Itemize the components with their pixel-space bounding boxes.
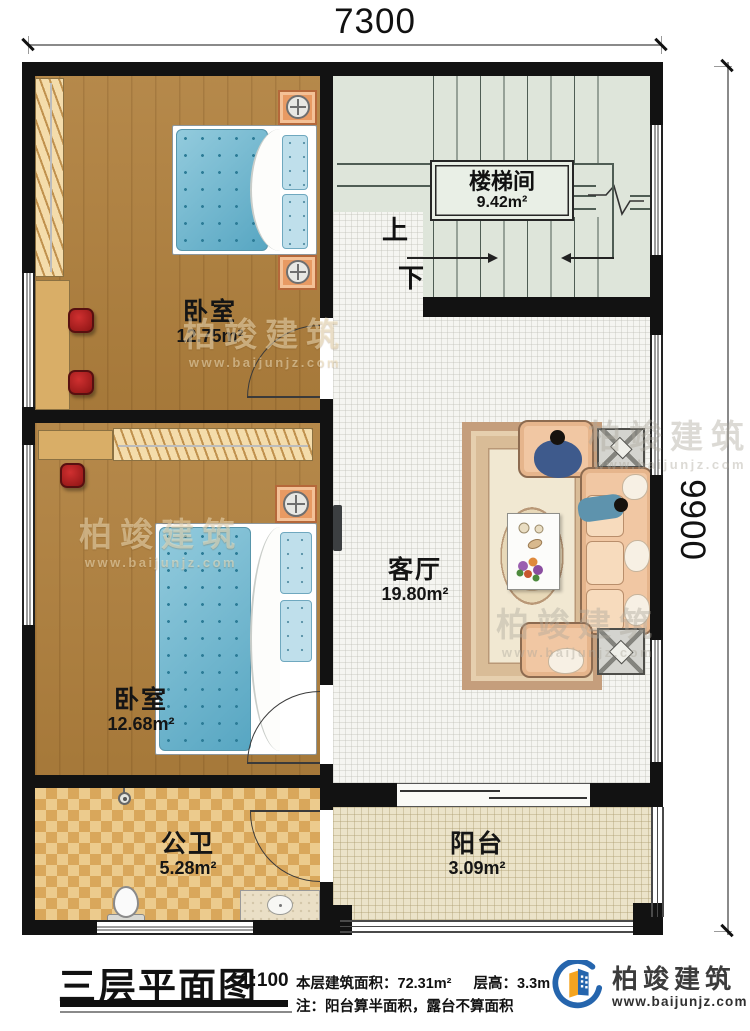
bedroom-top-name: 卧室: [140, 298, 280, 326]
stairs-up-label: 上: [382, 210, 408, 247]
stool: [60, 463, 85, 488]
sofa-cushion: [586, 541, 624, 585]
wall: [650, 255, 663, 335]
stairwell-name: 楼梯间: [469, 170, 535, 194]
lamp-icon: [286, 260, 310, 284]
pillow: [282, 194, 308, 249]
dimension-right-label: 9900: [672, 450, 712, 590]
person-head: [614, 498, 628, 512]
living-label: 客厅 19.80m²: [345, 556, 485, 604]
title-underline-thin: [60, 1011, 292, 1013]
bathroom-label: 公卫 5.28m²: [118, 830, 258, 878]
floor-height-text: 层高：3.3m: [474, 976, 551, 992]
wall: [423, 297, 663, 317]
lamp-icon: [283, 491, 309, 517]
wall: [320, 399, 333, 685]
bedroom-bottom-label: 卧室 12.68m²: [71, 686, 211, 734]
wall: [253, 920, 333, 935]
bedroom-top-area: 12.75m²: [140, 326, 280, 346]
sliding-door-panel: [400, 790, 500, 792]
balcony-name: 阳台: [407, 830, 547, 858]
wardrobe-rod: [50, 83, 52, 272]
wardrobe: [35, 78, 64, 277]
door-leaf: [247, 396, 320, 398]
stair-arrow-line: [570, 257, 614, 259]
toilet: [113, 886, 139, 918]
coffee-table: [507, 513, 560, 590]
shower-icon: [118, 792, 131, 805]
floor-info: 本层建筑面积：72.31m² 层高：3.3m: [296, 972, 550, 993]
dimension-top-line: [28, 44, 662, 46]
bathroom-area: 5.28m²: [118, 858, 258, 878]
window: [650, 125, 663, 255]
wall: [22, 62, 35, 273]
wall: [333, 783, 397, 807]
dresser: [38, 430, 113, 460]
stairwell-area: 9.42m²: [477, 194, 528, 212]
stairs-down-label: 下: [398, 258, 424, 295]
door-leaf: [250, 810, 320, 812]
window: [650, 335, 663, 475]
sliding-door-panel: [489, 797, 587, 799]
brand-logo: 柏竣建筑 www.baijunjz.com: [550, 960, 748, 1014]
dimension-right-line: [727, 62, 729, 935]
side-table: [597, 628, 645, 675]
window: [97, 920, 253, 935]
wall: [650, 475, 663, 640]
throw-pillow: [622, 474, 648, 500]
throw-pillow: [548, 648, 584, 674]
tv: [333, 505, 342, 551]
pillow: [282, 135, 308, 190]
balcony-area: 3.09m²: [407, 858, 547, 878]
floorplan-canvas: 7300 9900 上 下: [0, 0, 750, 1031]
brand-logo-icon: [550, 960, 604, 1014]
living-name: 客厅: [345, 556, 485, 584]
lamp-icon: [286, 95, 310, 119]
balcony-railing: [651, 807, 664, 917]
stair-arrow-icon: [561, 253, 571, 263]
stair-path-line: [612, 163, 614, 257]
person-head: [550, 430, 565, 445]
title-underline: [60, 1000, 288, 1007]
window: [650, 640, 663, 762]
desk: [35, 280, 70, 410]
wall: [320, 76, 333, 318]
stool: [68, 370, 94, 395]
sliding-door: [397, 783, 590, 807]
bedroom-top-label: 卧室 12.75m²: [140, 298, 280, 346]
brand-name: 柏竣建筑: [612, 965, 748, 995]
wall: [22, 62, 663, 76]
stool: [68, 308, 94, 333]
balcony-railing: [340, 920, 633, 933]
drawing-scale: 1:100: [240, 970, 289, 992]
side-table: [597, 428, 645, 468]
floor-note: 注：阳台算半面积，露台不算面积: [296, 995, 514, 1016]
table-decor-icon: [508, 514, 558, 588]
living-area: 19.80m²: [345, 584, 485, 604]
wardrobe: [113, 428, 313, 461]
side-table-top: [609, 639, 634, 664]
wall: [590, 783, 663, 807]
pillow: [280, 532, 312, 594]
person: [534, 440, 582, 478]
wardrobe-rod: [118, 445, 308, 447]
wall: [22, 775, 333, 788]
window: [22, 273, 35, 407]
stair-break-symbol: [588, 184, 644, 216]
floor-area-text: 本层建筑面积：72.31m²: [296, 976, 452, 992]
wall: [320, 882, 333, 920]
brand-logo-text: 柏竣建筑 www.baijunjz.com: [612, 965, 748, 1010]
throw-pillow: [624, 594, 650, 626]
brand-website: www.baijunjz.com: [612, 994, 748, 1009]
window: [22, 445, 35, 625]
floor-plan: 上 下 楼梯间 9.42m² 卧室 12.75m²: [22, 62, 663, 935]
bedroom-bottom-name: 卧室: [71, 686, 211, 714]
side-table-top: [610, 437, 633, 460]
stair-treads-upper: [433, 76, 599, 163]
dimension-top-label: 7300: [285, 2, 465, 42]
wall: [22, 410, 333, 423]
door-leaf: [247, 762, 320, 764]
bathroom-name: 公卫: [118, 830, 258, 858]
stair-arrow-icon: [488, 253, 498, 263]
bedroom-bottom-area: 12.68m²: [71, 714, 211, 734]
wall: [22, 920, 97, 935]
stairwell-label-box: 楼梯间 9.42m²: [430, 160, 574, 221]
pillow: [280, 600, 312, 662]
throw-pillow: [624, 540, 650, 572]
sofa-cushion: [586, 589, 624, 631]
balcony-label: 阳台 3.09m²: [407, 830, 547, 878]
wall: [650, 62, 663, 125]
sink: [267, 895, 293, 915]
